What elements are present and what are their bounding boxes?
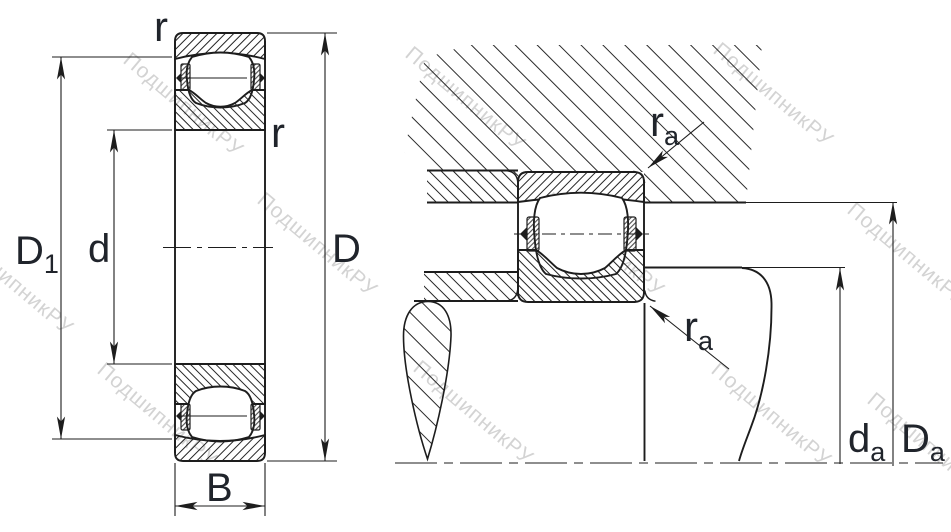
label-da: da (848, 417, 886, 467)
label-B: B (206, 466, 233, 510)
label-Da: Da (901, 417, 946, 467)
bearing-technical-drawing: ПодшипникРУ ПодшипникРУ ПодшипникРУ Подш… (0, 0, 951, 532)
watermark: ПодшипникРУ (843, 198, 951, 311)
roller-bottom (187, 387, 255, 442)
watermark: ПодшипникРУ (707, 358, 836, 471)
label-ra-bottom: ra (684, 303, 714, 356)
label-D1: D1 (15, 229, 59, 279)
label-d: d (88, 227, 110, 271)
shaft-broken-section (404, 302, 452, 460)
shaft-shoulder-left (424, 272, 518, 301)
label-r-top: r (154, 3, 168, 50)
shaft-shoulder-silhouette (739, 268, 772, 461)
label-D: D (332, 227, 361, 271)
right-view-bearing (514, 172, 650, 302)
housing-shoulder-left (427, 170, 518, 203)
drawing-canvas: ПодшипникРУ ПодшипникРУ ПодшипникРУ Подш… (0, 0, 951, 532)
watermark: ПодшипникРУ (253, 188, 382, 301)
left-view-bearing-section (163, 33, 273, 461)
label-r-inner: r (271, 109, 285, 156)
d-extension-lines (107, 130, 172, 364)
